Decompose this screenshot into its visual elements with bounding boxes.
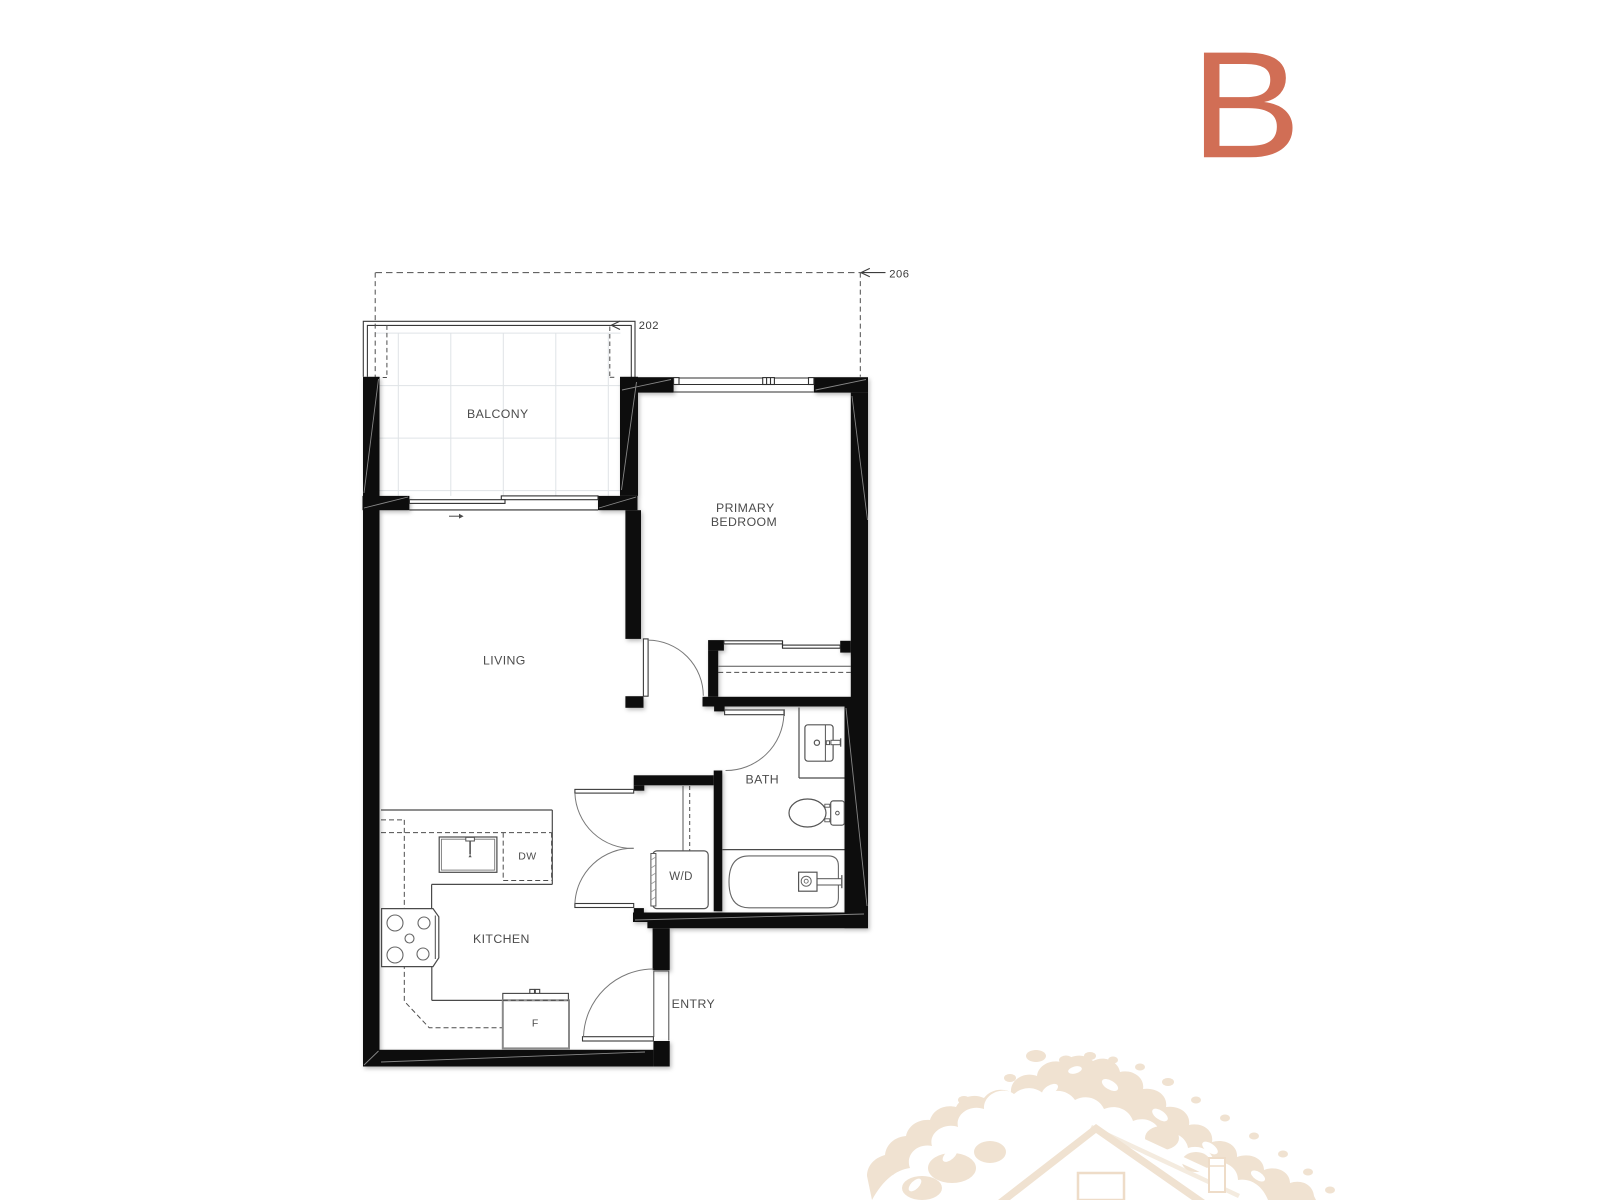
svg-text:W/D: W/D xyxy=(669,871,693,883)
svg-text:ENTRY: ENTRY xyxy=(672,997,715,1011)
svg-text:BEDROOM: BEDROOM xyxy=(711,515,777,529)
svg-text:F: F xyxy=(532,1018,539,1030)
svg-text:206: 206 xyxy=(889,269,909,281)
svg-text:DW: DW xyxy=(518,850,536,862)
svg-text:B: B xyxy=(1190,20,1301,190)
svg-text:LIVING: LIVING xyxy=(483,653,526,667)
svg-text:KITCHEN: KITCHEN xyxy=(473,932,530,946)
svg-text:BATH: BATH xyxy=(746,773,779,787)
svg-text:PRIMARY: PRIMARY xyxy=(716,501,775,515)
svg-text:BALCONY: BALCONY xyxy=(467,407,529,421)
svg-text:202: 202 xyxy=(639,320,659,332)
